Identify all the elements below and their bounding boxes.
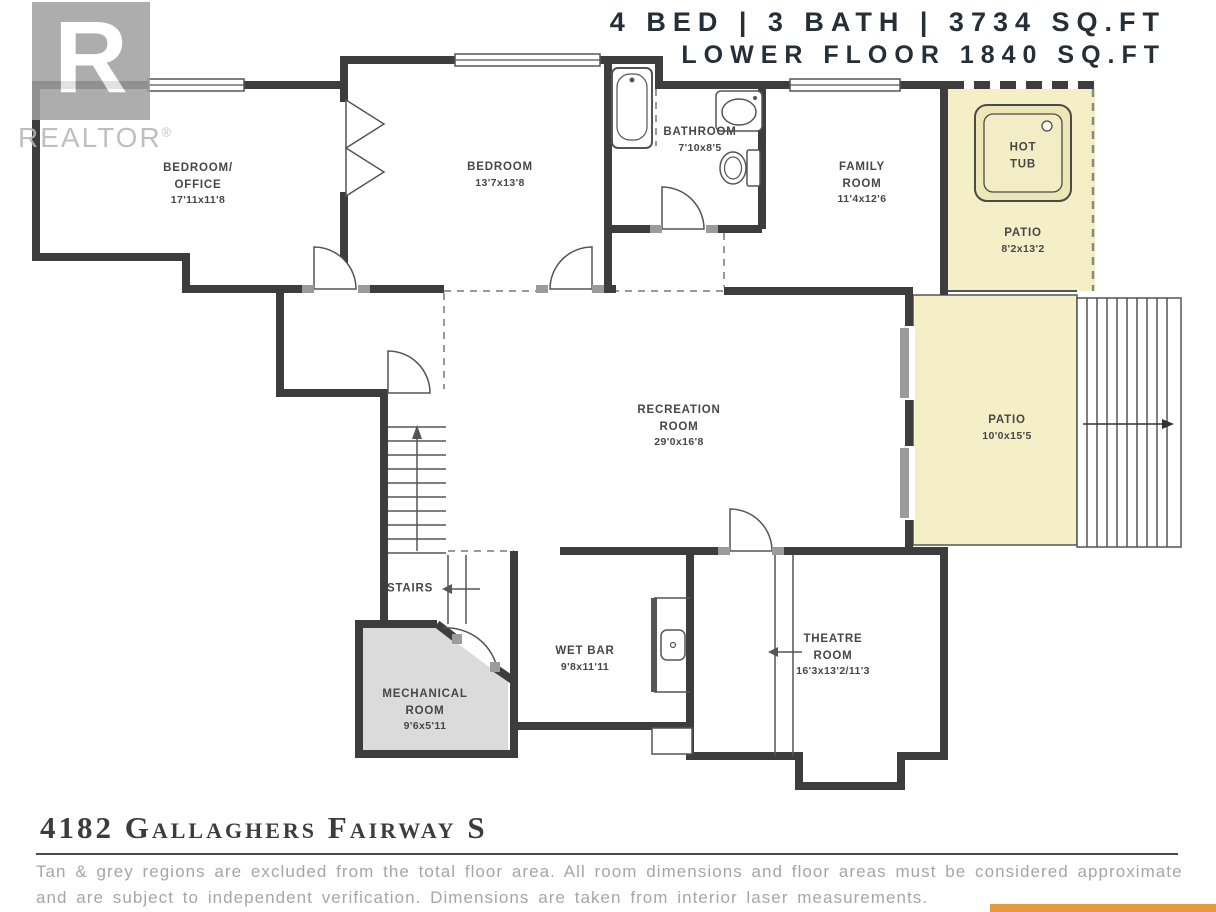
- property-address: 4182 Gallaghers Fairway S: [40, 810, 488, 846]
- window: [790, 79, 900, 91]
- realtor-logo-text: REALTOR®: [18, 122, 173, 154]
- stats-line2: LOWER FLOOR 1840 SQ.FT: [610, 41, 1166, 70]
- floor-stats: 4 BED | 3 BATH | 3734 SQ.FT LOWER FLOOR …: [610, 7, 1166, 70]
- room-label-patio-lower: PATIO 10'0x15'5: [982, 412, 1031, 442]
- disclaimer: Tan & grey regions are excluded from the…: [36, 859, 1183, 910]
- disclaimer-line1: Tan & grey regions are excluded from the…: [36, 859, 1183, 885]
- stairs-up-arrow-icon: [412, 425, 422, 551]
- deck-steps: [1077, 298, 1181, 547]
- realtor-r-icon: R: [54, 6, 128, 108]
- room-label-bathroom: BATHROOM 7'10x8'5: [663, 124, 736, 154]
- door-arc: [730, 509, 772, 551]
- bathtub-icon: [612, 68, 652, 148]
- toilet-icon: [720, 150, 760, 186]
- room-label-patio-upper: PATIO 8'2x13'2: [1001, 225, 1044, 255]
- room-label-bedroom: BEDROOM 13'7x13'8: [467, 159, 533, 189]
- room-label-mechanical-room: MECHANICAL ROOM 9'6x5'11: [382, 686, 467, 732]
- room-label-theatre-room: THEATRE ROOM 16'3x13'2/11'3: [796, 631, 870, 677]
- door-arc: [314, 247, 356, 289]
- realtor-logo: R REALTOR®: [18, 2, 173, 154]
- wet-bar-counter: [654, 598, 690, 692]
- room-label-bedroom-office: BEDROOM/ OFFICE 17'11x11'8: [163, 160, 233, 206]
- room-label-family-room: FAMILY ROOM 11'4x12'6: [838, 159, 887, 205]
- window: [455, 54, 600, 66]
- door-arc: [388, 351, 430, 393]
- window-well: [652, 728, 692, 754]
- stats-line1: 4 BED | 3 BATH | 3734 SQ.FT: [610, 7, 1166, 38]
- door-arc: [662, 187, 704, 229]
- wet-bar-sink-icon: [661, 630, 685, 660]
- realtor-logo-mark: R: [32, 2, 150, 120]
- room-label-hot-tub: HOT TUB: [1010, 139, 1037, 172]
- floor-plan: [0, 0, 1216, 912]
- accent-bar: [990, 904, 1216, 912]
- room-label-stairs: STAIRS: [387, 581, 433, 598]
- closet-bifold-icon: [346, 100, 384, 196]
- door-arc: [550, 247, 592, 289]
- footer-divider: [36, 853, 1178, 855]
- room-label-recreation-room: RECREATION ROOM 29'0x16'8: [637, 402, 720, 448]
- room-label-wet-bar: WET BAR 9'8x11'11: [555, 643, 614, 673]
